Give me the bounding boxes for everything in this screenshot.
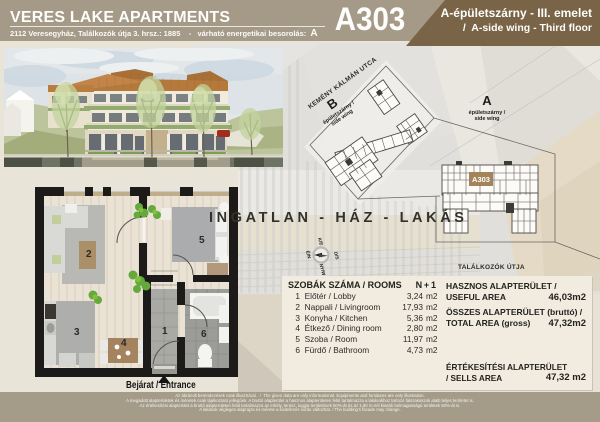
svg-text:NY/W: NY/W bbox=[318, 263, 326, 277]
svg-text:side wing: side wing bbox=[474, 116, 499, 122]
svg-text:2: 2 bbox=[86, 249, 92, 260]
svg-text:TALÁLKOZÓK ÚTJA: TALÁLKOZÓK ÚTJA bbox=[458, 262, 525, 271]
svg-text:A303: A303 bbox=[472, 175, 490, 184]
svg-text:D/S: D/S bbox=[333, 251, 340, 260]
svg-text:1: 1 bbox=[162, 326, 168, 337]
svg-text:4: 4 bbox=[121, 338, 127, 349]
svg-text:5: 5 bbox=[199, 235, 205, 246]
svg-text:K/E: K/E bbox=[317, 237, 324, 246]
svg-text:A: A bbox=[482, 93, 492, 108]
svg-text:3: 3 bbox=[74, 327, 80, 338]
svg-text:6: 6 bbox=[201, 329, 207, 340]
